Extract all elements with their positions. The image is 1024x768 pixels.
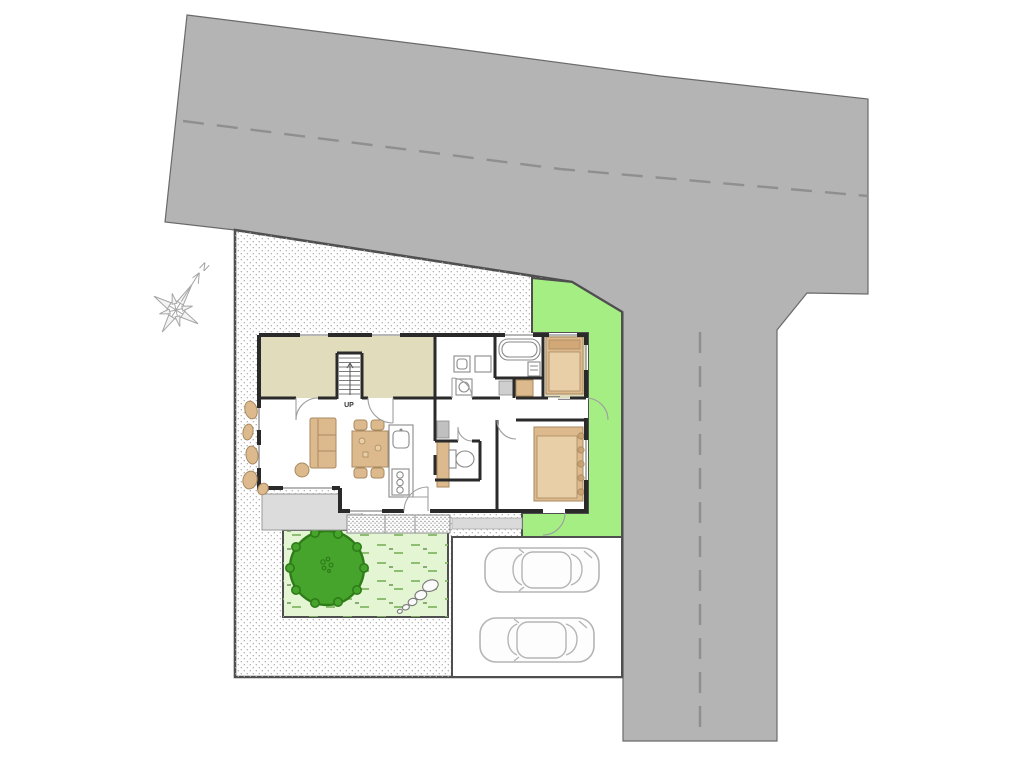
site-plan-page: N UP <box>0 0 1024 768</box>
car-2-icon <box>480 618 594 662</box>
car-1-icon <box>485 548 599 592</box>
closet-icon <box>516 380 533 396</box>
toilet-icon <box>449 450 474 468</box>
parking-area <box>452 537 622 677</box>
north-needle <box>179 271 204 304</box>
compass-rose-icon: N <box>140 248 228 346</box>
entrance-walkway <box>452 518 522 529</box>
sofa-icon <box>310 418 336 468</box>
site-plan-drawing: N UP <box>0 0 1024 768</box>
storage-box <box>499 381 513 395</box>
entrance-steps <box>347 515 450 533</box>
counter-icon <box>475 356 491 372</box>
northeast-bed-icon <box>546 337 583 394</box>
side-table-icon <box>295 463 309 477</box>
shower-unit-icon <box>528 362 540 376</box>
stairs-up-label: UP <box>344 402 354 409</box>
refrigerator-icon <box>437 421 449 438</box>
house-floor-plan <box>241 333 588 533</box>
master-bed-icon <box>534 427 584 501</box>
hall-storage <box>437 421 449 487</box>
lawn-garden <box>283 529 448 617</box>
compass-north-label: N <box>197 260 210 274</box>
kitchen-island-icon <box>389 425 413 497</box>
